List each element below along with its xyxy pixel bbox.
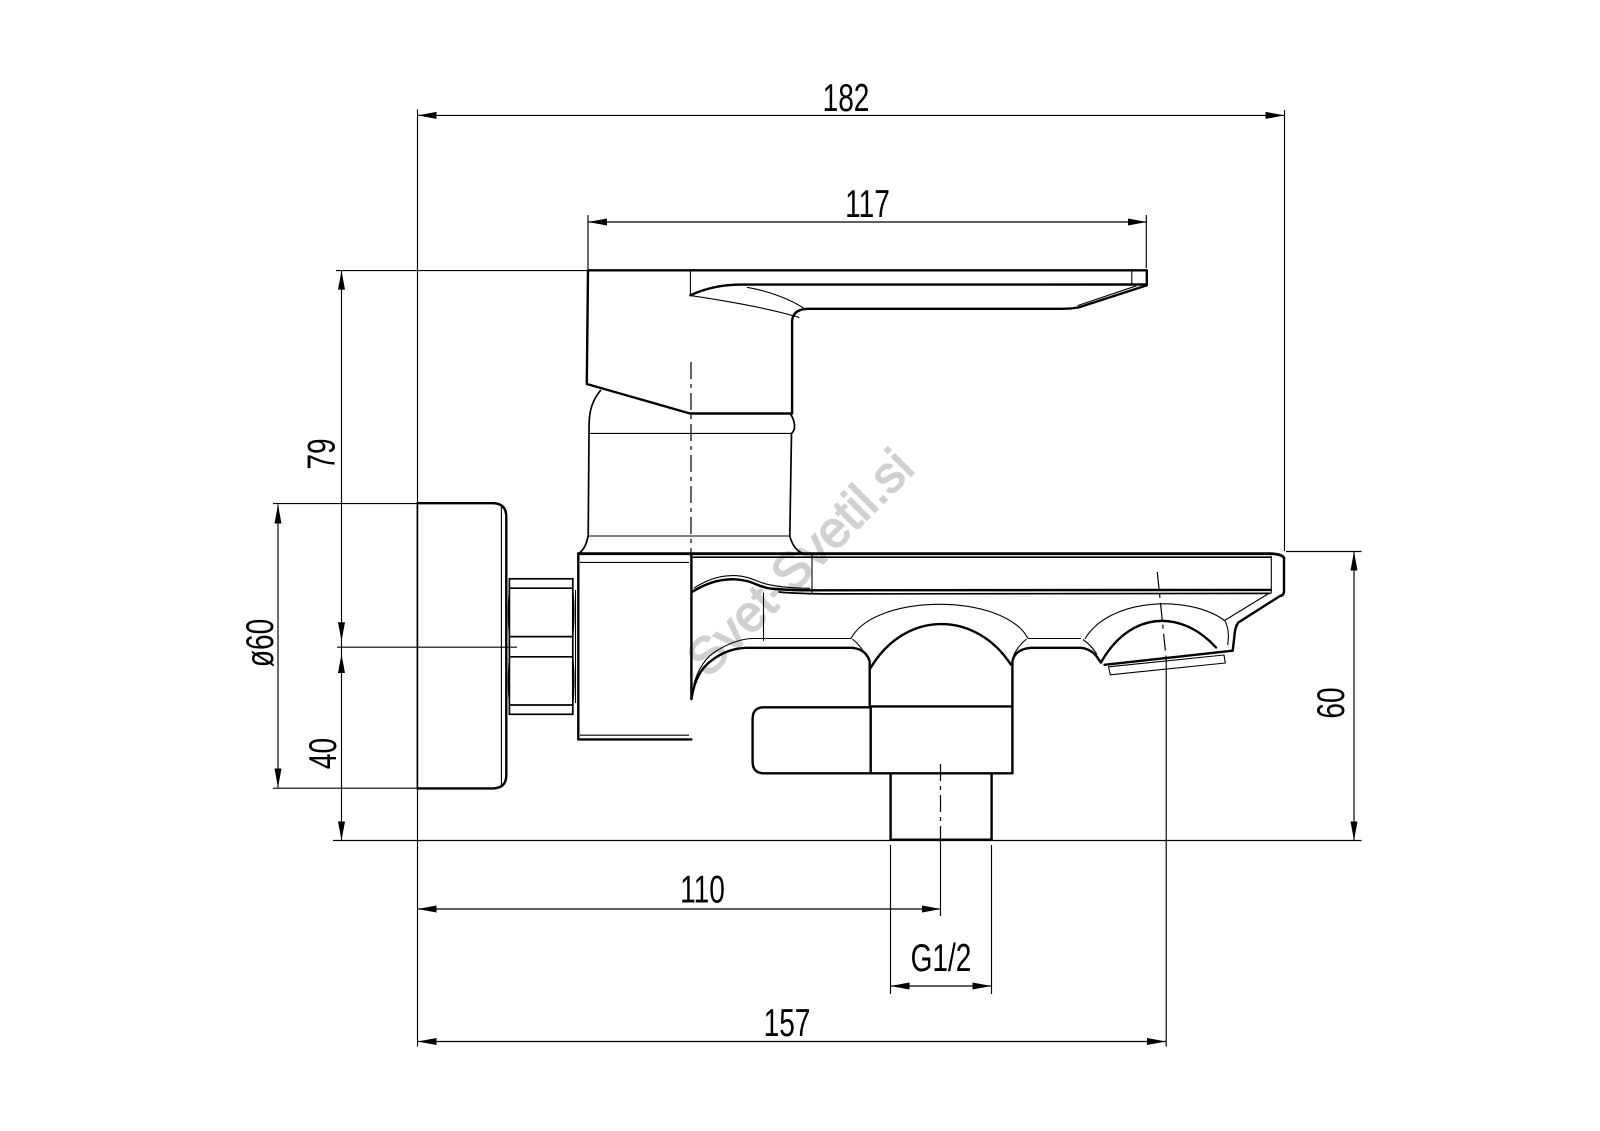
svg-text:157: 157 [764, 1002, 811, 1046]
svg-text:117: 117 [845, 183, 890, 227]
svg-text:G1/2: G1/2 [911, 937, 972, 981]
svg-text:60: 60 [1310, 687, 1354, 718]
svg-text:110: 110 [680, 868, 725, 912]
svg-text:182: 182 [823, 77, 870, 121]
svg-text:40: 40 [302, 738, 346, 769]
svg-text:79: 79 [300, 438, 344, 469]
svg-text:ø60: ø60 [239, 619, 283, 667]
